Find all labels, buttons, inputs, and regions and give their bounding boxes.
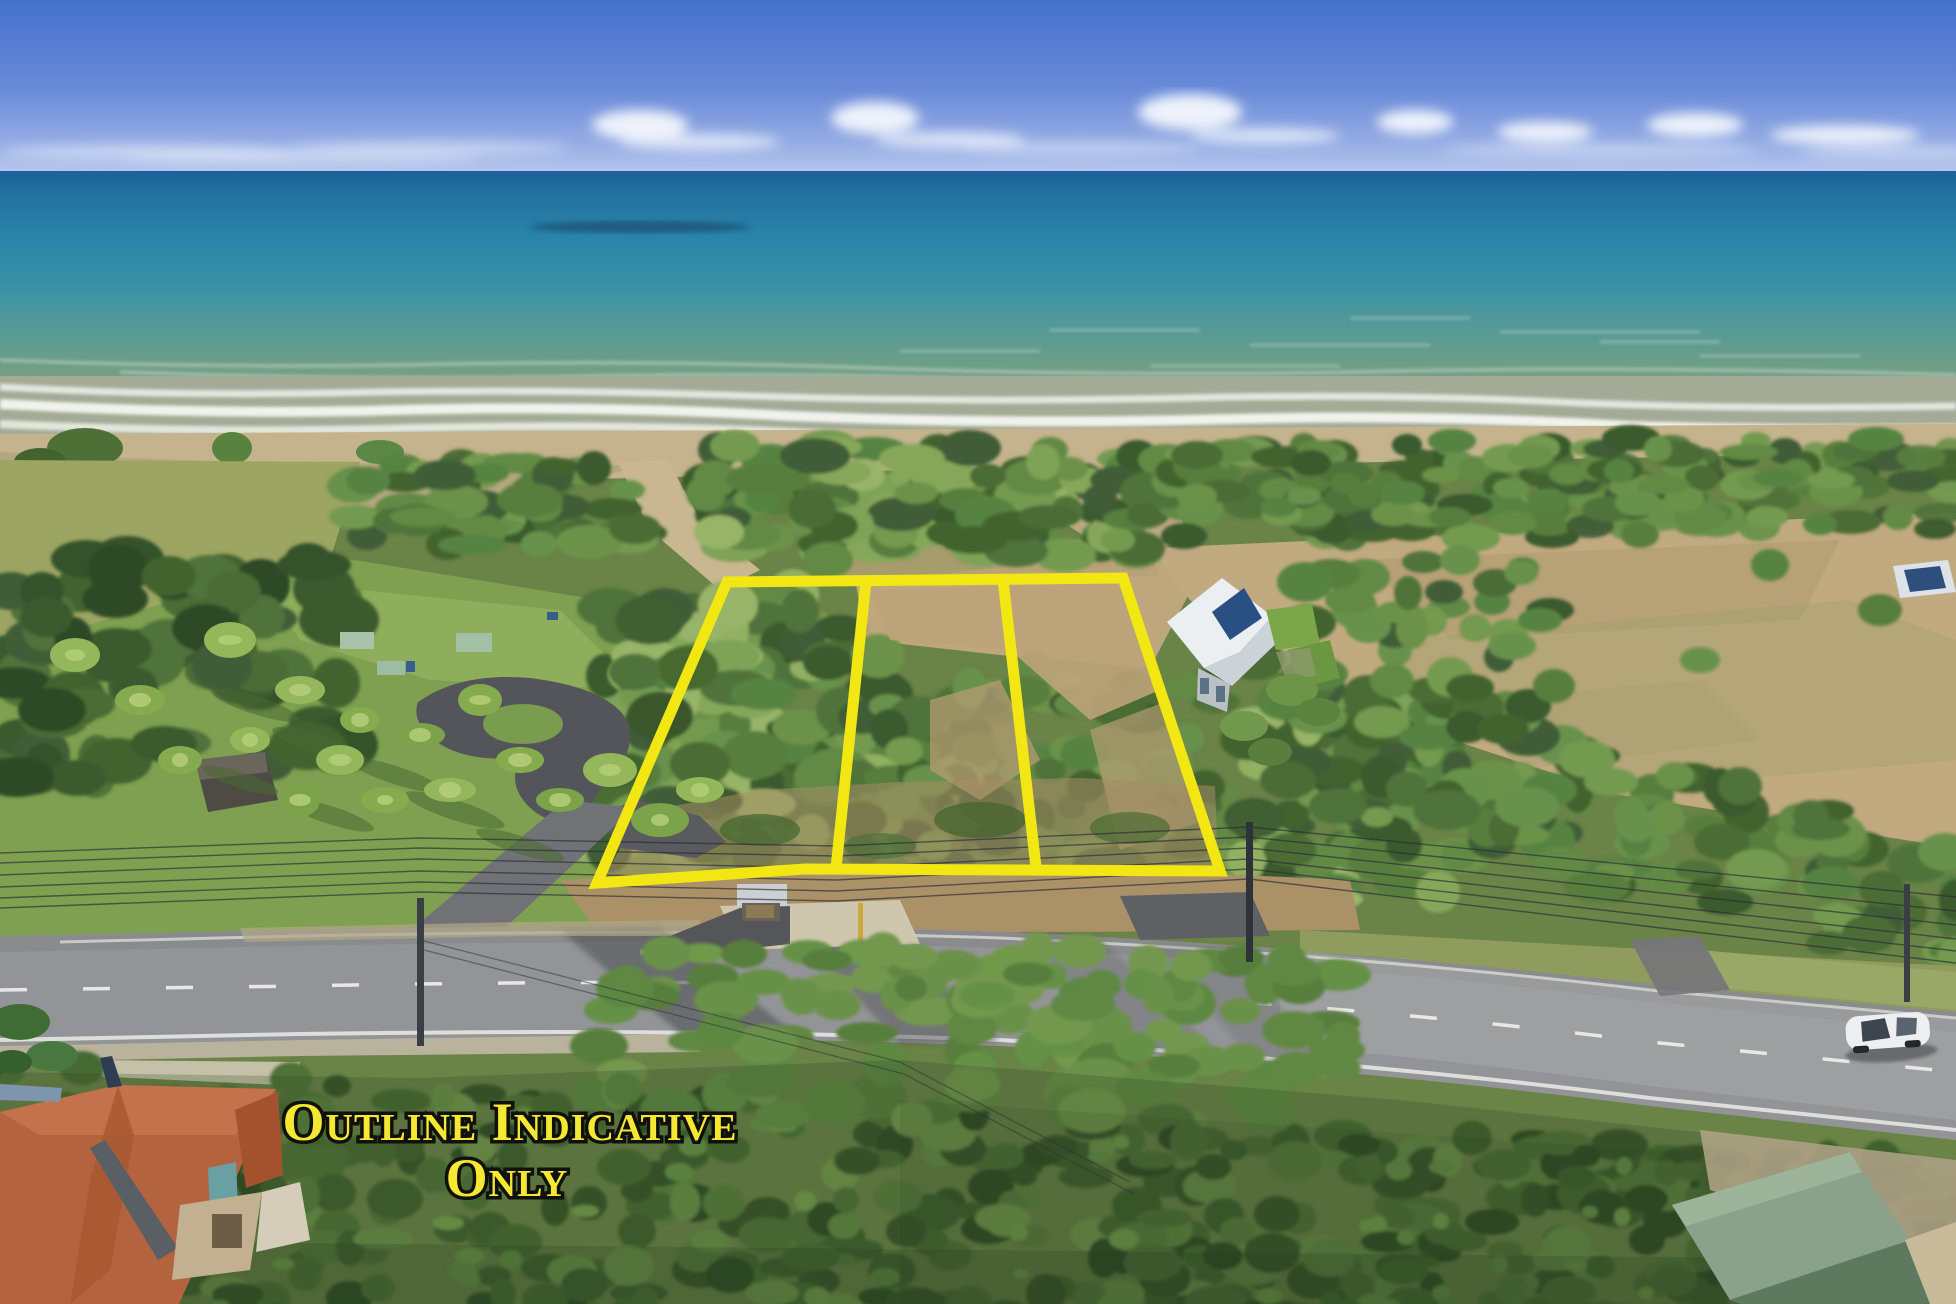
svg-text:Only: Only <box>446 1148 569 1208</box>
svg-text:Outline Indicative: Outline Indicative <box>283 1092 738 1152</box>
